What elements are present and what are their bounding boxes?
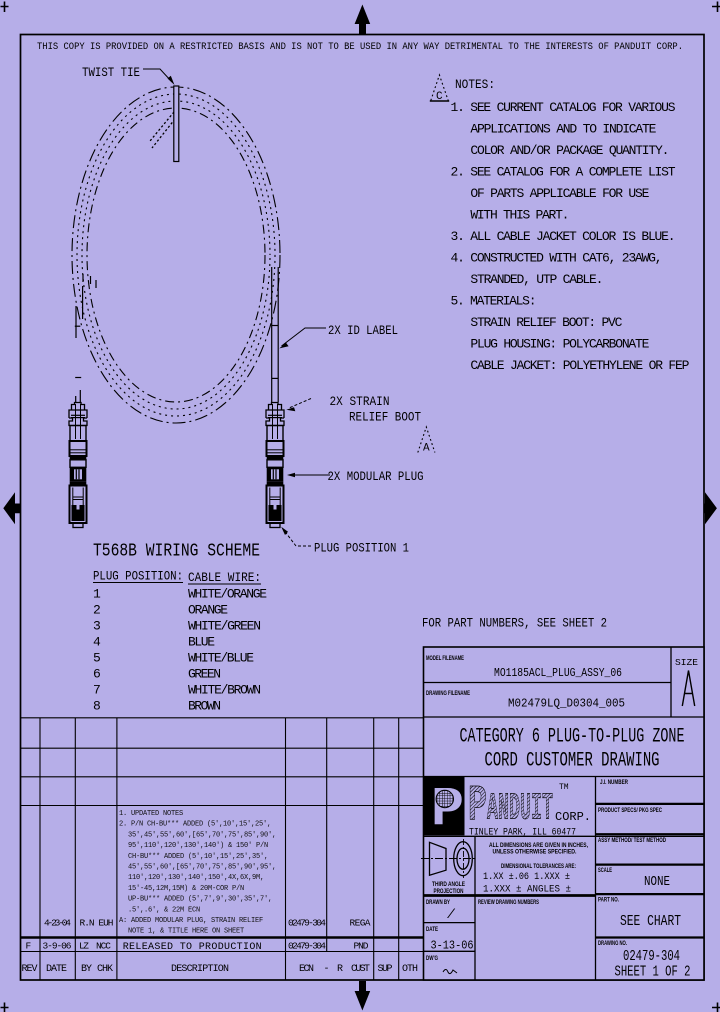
svg-text:BY: BY <box>81 964 92 975</box>
svg-text:2: 2 <box>93 603 101 618</box>
svg-text:5: 5 <box>93 651 101 666</box>
svg-text:ANDUIT: ANDUIT <box>487 788 553 831</box>
svg-text:P: P <box>468 778 487 835</box>
svg-text:CORD CUSTOMER DRAWING: CORD CUSTOMER DRAWING <box>485 750 660 773</box>
svg-text:8: 8 <box>93 699 101 714</box>
svg-text:DRAWING FILENAME: DRAWING FILENAME <box>426 691 470 697</box>
svg-text:SCALE: SCALE <box>598 868 612 874</box>
svg-text:DATE: DATE <box>46 964 67 975</box>
svg-text:/: / <box>447 907 456 922</box>
svg-text:PLUG POSITION 1: PLUG POSITION 1 <box>314 541 409 556</box>
svg-text:DIMENSIONAL TOLERANCES ARE:: DIMENSIONAL TOLERANCES ARE: <box>501 864 576 870</box>
svg-text:REVIEW DRAWING NUMBERS: REVIEW DRAWING NUMBERS <box>478 900 539 906</box>
svg-text:3: 3 <box>93 619 101 634</box>
svg-text:NOTE 1, & TITLE HERE ON SHEET: NOTE 1, & TITLE HERE ON SHEET <box>128 928 244 936</box>
svg-text:ALL DIMENSIONS ARE GIVEN IN IN: ALL DIMENSIONS ARE GIVEN IN INCHES, <box>489 843 588 849</box>
svg-text:STRANDED, UTP CABLE.: STRANDED, UTP CABLE. <box>470 272 603 287</box>
svg-text:BROWN: BROWN <box>188 699 221 714</box>
svg-text:F: F <box>26 941 32 952</box>
svg-text:WHITE/BLUE: WHITE/BLUE <box>188 651 254 666</box>
svg-text:1: 1 <box>93 587 101 602</box>
svg-text:95',110',120',130',140') & 150: 95',110',120',130',140') & 150' P/N <box>128 842 268 850</box>
svg-text:DATE: DATE <box>426 927 438 933</box>
svg-text:WHITE/GREEN: WHITE/GREEN <box>188 619 261 634</box>
svg-text:5. MATERIALS:: 5. MATERIALS: <box>451 294 537 309</box>
svg-text:2X MODULAR PLUG: 2X MODULAR PLUG <box>328 469 424 484</box>
svg-text:CORP.: CORP. <box>555 810 591 824</box>
svg-text:PLUG HOUSING: POLYCARBONATE: PLUG HOUSING: POLYCARBONATE <box>470 337 649 352</box>
svg-text:4. CONSTRUCTED WITH CAT6, 23AW: 4. CONSTRUCTED WITH CAT6, 23AWG, <box>451 251 663 266</box>
svg-text:UNLESS OTHERWISE SPECIFIED.: UNLESS OTHERWISE SPECIFIED. <box>493 850 577 856</box>
svg-text:A: ADDED MODULAR PLUG, STRAIN: A: ADDED MODULAR PLUG, STRAIN RELIEF <box>119 917 263 925</box>
svg-text:TM: TM <box>559 783 569 792</box>
svg-text:TWIST TIE: TWIST TIE <box>82 65 140 80</box>
svg-text:02479-304: 02479-304 <box>623 948 680 965</box>
svg-text:6: 6 <box>93 667 101 682</box>
svg-text:MO1185ACL_PLUG_ASSY_06: MO1185ACL_PLUG_ASSY_06 <box>494 666 622 680</box>
svg-text:DW'G: DW'G <box>426 956 438 962</box>
svg-text:1. SEE CURRENT CATALOG FOR VAR: 1. SEE CURRENT CATALOG FOR VARIOUS <box>451 100 676 115</box>
svg-text:-: - <box>324 964 330 975</box>
svg-text:CUST: CUST <box>351 964 370 975</box>
svg-text:THIS COPY IS PROVIDED ON A RES: THIS COPY IS PROVIDED ON A RESTRICTED BA… <box>37 42 683 53</box>
svg-text:UP-BU*** ADDED (5',7',9',30',3: UP-BU*** ADDED (5',7',9',30',35',7', <box>128 896 272 904</box>
svg-text:1.XXX ± ANGLES ±: 1.XXX ± ANGLES ± <box>483 885 571 896</box>
svg-text:CH-BU*** ADDED (5',10',15',25': CH-BU*** ADDED (5',10',15',25',35', <box>128 853 268 861</box>
svg-text:STRAIN RELIEF BOOT: PVC: STRAIN RELIEF BOOT: PVC <box>470 315 622 330</box>
svg-text:NONE: NONE <box>644 874 670 890</box>
svg-text:1.XX ±.06 1.XXX ±: 1.XX ±.06 1.XXX ± <box>483 872 570 883</box>
svg-text:R.N EUH: R.N EUH <box>80 918 114 929</box>
svg-text:WHITE/BROWN: WHITE/BROWN <box>188 683 261 698</box>
svg-text:45',55',60',[65',70',75',85',9: 45',55',60',[65',70',75',85',90',95', <box>128 864 276 872</box>
svg-text:2. SEE CATALOG FOR A COMPLETE: 2. SEE CATALOG FOR A COMPLETE LIST <box>451 165 676 180</box>
svg-text:WITH THIS PART.: WITH THIS PART. <box>470 208 569 223</box>
svg-text:02479-304: 02479-304 <box>288 941 326 952</box>
svg-text:A: A <box>423 443 430 455</box>
svg-text:OF PARTS APPLICABLE FOR USE: OF PARTS APPLICABLE FOR USE <box>470 186 649 201</box>
svg-text:DRAWING NO.: DRAWING NO. <box>598 941 627 947</box>
svg-text:REV: REV <box>22 964 38 975</box>
svg-text:2. P/N CH-BU*** ADDED (5',10',: 2. P/N CH-BU*** ADDED (5',10',15',25', <box>119 821 271 829</box>
svg-text:M02479LQ_D0304_005: M02479LQ_D0304_005 <box>508 697 625 711</box>
svg-text:COLOR AND/OR PACKAGE QUANTITY.: COLOR AND/OR PACKAGE QUANTITY. <box>470 143 669 158</box>
svg-text:R: R <box>337 964 343 975</box>
svg-text:PROJECTION: PROJECTION <box>434 889 464 895</box>
svg-text:1. UPDATED NOTES: 1. UPDATED NOTES <box>119 810 183 818</box>
svg-text:APPLICATIONS AND TO INDICATE: APPLICATIONS AND TO INDICATE <box>470 122 656 137</box>
svg-text:BLUE: BLUE <box>188 635 215 650</box>
svg-text:OTH: OTH <box>402 964 418 975</box>
svg-text:LZ: LZ <box>79 941 89 952</box>
svg-text:35',45',55',60',[65',70',75',8: 35',45',55',60',[65',70',75',85',90', <box>128 831 276 839</box>
svg-text:C: C <box>436 91 443 103</box>
svg-text:TINLEY PARK, ILL 60477: TINLEY PARK, ILL 60477 <box>469 828 576 839</box>
svg-text:FOR PART NUMBERS, SEE SHEET 2: FOR PART NUMBERS, SEE SHEET 2 <box>422 616 607 631</box>
svg-text:.5',.6', & 22M ECN: .5',.6', & 22M ECN <box>128 906 200 914</box>
svg-text:ECN: ECN <box>299 964 314 975</box>
svg-text:ORANGE: ORANGE <box>188 603 228 618</box>
svg-text:DRAWN BY: DRAWN BY <box>426 900 450 906</box>
svg-text:110',120',130',140',150',4X,6X: 110',120',130',140',150',4X,6X,9M, <box>128 874 264 882</box>
svg-text:MODEL FILENAME: MODEL FILENAME <box>426 656 464 662</box>
svg-text:PND: PND <box>354 941 369 952</box>
svg-text:3-13-06: 3-13-06 <box>431 939 474 953</box>
svg-text:7: 7 <box>93 683 101 698</box>
svg-text:NOTES:: NOTES: <box>455 77 495 92</box>
svg-text:2X STRAIN: 2X STRAIN <box>330 394 390 409</box>
svg-text:PRODUCT SPECS/ PKG SPEC: PRODUCT SPECS/ PKG SPEC <box>598 808 662 814</box>
svg-text:P: P <box>431 778 464 841</box>
svg-text:DESCRIPTION: DESCRIPTION <box>171 964 229 975</box>
svg-text:CHK: CHK <box>97 964 113 975</box>
svg-text:SEE CHART: SEE CHART <box>620 913 681 930</box>
svg-text:RELEASED TO PRODUCTION: RELEASED TO PRODUCTION <box>123 942 262 953</box>
svg-text:J.I. NUMBER: J.I. NUMBER <box>600 780 629 786</box>
svg-text:4-23-04: 4-23-04 <box>44 918 71 929</box>
svg-text:SHEET 1 OF 2: SHEET 1 OF 2 <box>615 964 691 981</box>
svg-text:NCC: NCC <box>96 941 111 952</box>
svg-text:ASSY METHOD/ TEST METHOD: ASSY METHOD/ TEST METHOD <box>598 838 666 844</box>
svg-text:PLUG POSITION:: PLUG POSITION: <box>93 569 183 584</box>
svg-text:SIZE: SIZE <box>675 658 698 668</box>
svg-text:CABLE WIRE:: CABLE WIRE: <box>188 570 261 585</box>
svg-text:GREEN: GREEN <box>188 667 221 682</box>
svg-text:CABLE JACKET: POLYETHYLENE OR: CABLE JACKET: POLYETHYLENE OR FEP <box>470 358 689 373</box>
svg-text:THIRD ANGLE: THIRD ANGLE <box>432 882 465 888</box>
svg-text:4: 4 <box>93 635 101 650</box>
svg-text:T568B WIRING SCHEME: T568B WIRING SCHEME <box>93 541 260 562</box>
svg-text:3. ALL CABLE JACKET COLOR IS B: 3. ALL CABLE JACKET COLOR IS BLUE. <box>451 229 676 244</box>
svg-text:02479-304: 02479-304 <box>288 918 326 929</box>
svg-text:SUP: SUP <box>378 964 393 975</box>
svg-text:PART NO.: PART NO. <box>598 898 619 904</box>
svg-text:3-9-06: 3-9-06 <box>43 941 72 952</box>
svg-text:REGA: REGA <box>350 918 371 929</box>
svg-text:CATEGORY 6 PLUG-TO-PLUG ZONE: CATEGORY 6 PLUG-TO-PLUG ZONE <box>460 726 685 749</box>
svg-text:RELIEF BOOT: RELIEF BOOT <box>349 410 421 425</box>
svg-text:2X ID LABEL: 2X ID LABEL <box>328 323 398 338</box>
svg-text:15'-45,12M,15M) & 20M-COR P/N: 15'-45,12M,15M) & 20M-COR P/N <box>128 885 244 893</box>
svg-text:WHITE/ORANGE: WHITE/ORANGE <box>188 587 267 602</box>
